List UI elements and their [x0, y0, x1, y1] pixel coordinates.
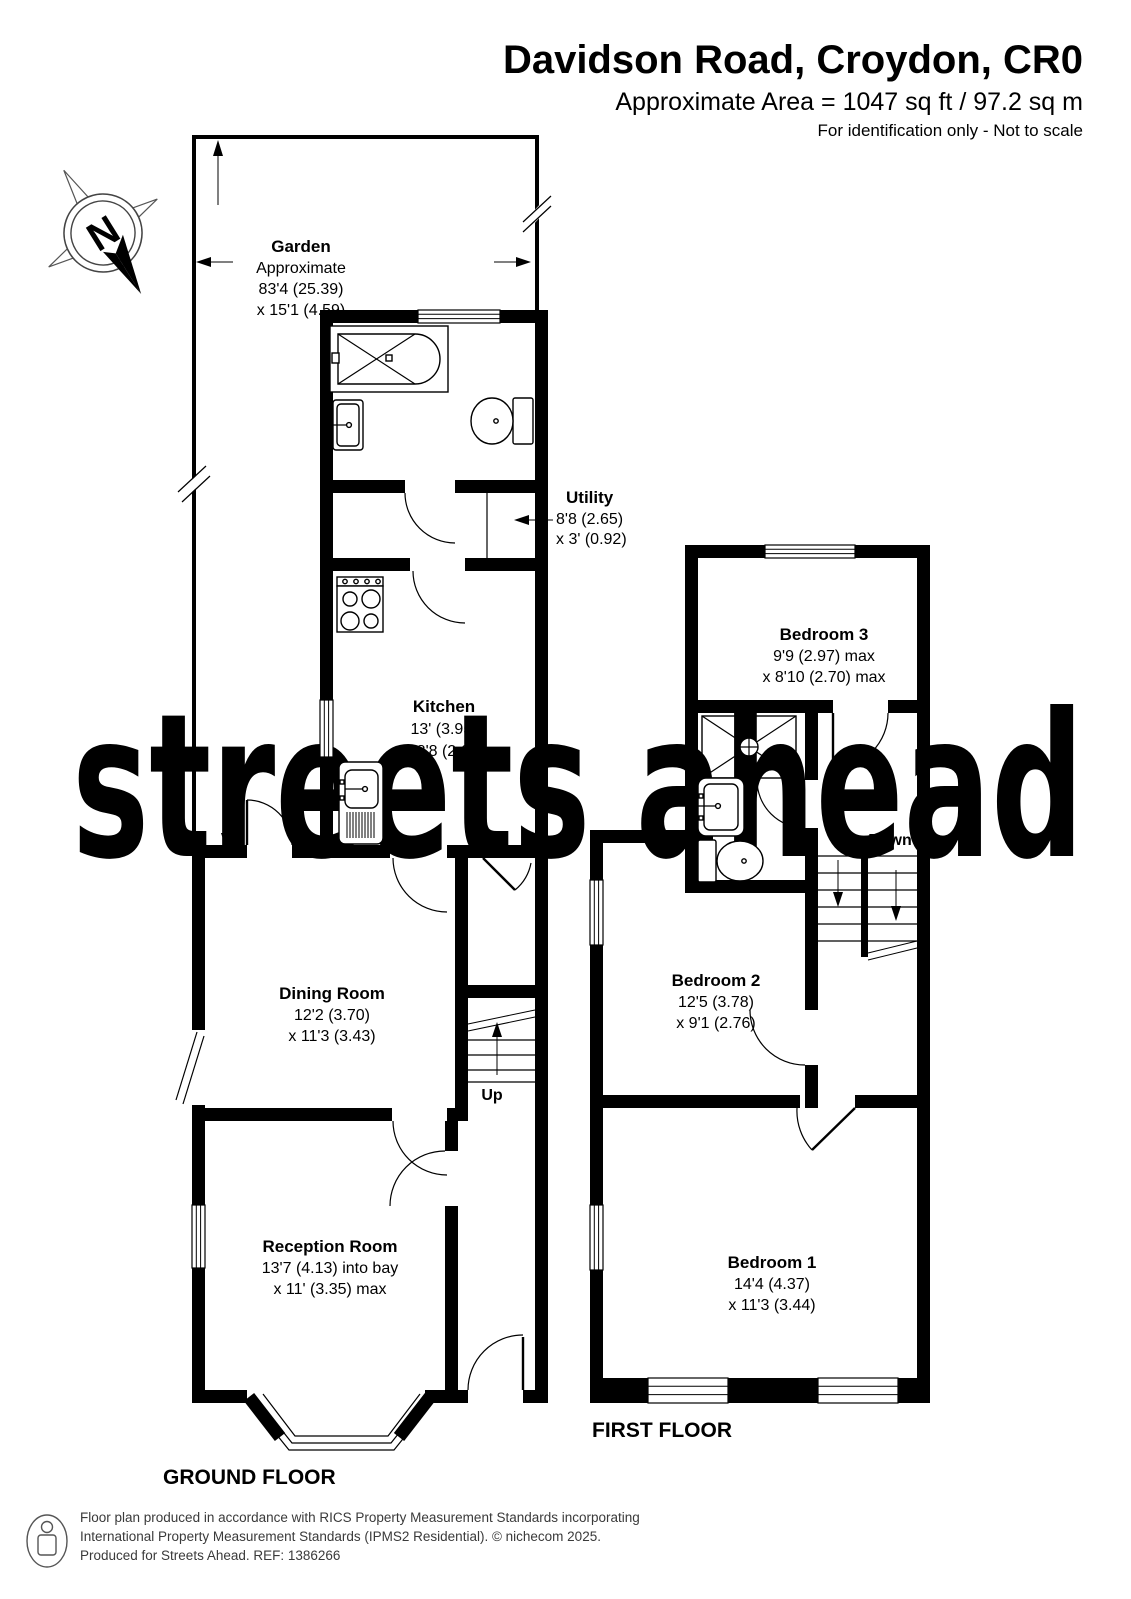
stairs-up: Up — [468, 1010, 535, 1104]
utility-label: Utility 8'8 (2.65) x 3' (0.92) — [514, 488, 627, 548]
kitchen-sink-icon — [339, 762, 383, 844]
area-line: Approximate Area = 1047 sq ft / 97.2 sq … — [615, 88, 1083, 116]
svg-text:Utility: Utility — [566, 488, 614, 507]
bedroom3-label: Bedroom 3 9'9 (2.97) max x 8'10 (2.70) m… — [762, 625, 885, 686]
footer-line-2: International Property Measurement Stand… — [80, 1529, 601, 1544]
svg-text:8'8 (2.65): 8'8 (2.65) — [556, 511, 623, 528]
header: Davidson Road, Croydon, CR0 Approximate … — [503, 38, 1083, 140]
shower-room-sink-icon — [698, 778, 744, 836]
watermark-text: streets ahead — [72, 671, 1084, 904]
svg-text:Garden: Garden — [271, 237, 331, 256]
footer-line-3: Produced for Streets Ahead. REF: 1386266 — [80, 1548, 340, 1563]
svg-text:83'4 (25.39): 83'4 (25.39) — [259, 281, 344, 298]
stairs-down-label: Down — [868, 832, 912, 849]
svg-text:x 15'1 (4.59): x 15'1 (4.59) — [257, 302, 345, 319]
footer-line-1: Floor plan produced in accordance with R… — [80, 1510, 640, 1525]
svg-text:14'4 (4.37): 14'4 (4.37) — [734, 1276, 810, 1293]
svg-text:x 9'1 (2.76): x 9'1 (2.76) — [676, 1015, 756, 1032]
compass-icon: N — [10, 136, 196, 328]
svg-text:Bedroom 1: Bedroom 1 — [728, 1253, 817, 1272]
shower-room-toilet-icon — [698, 840, 763, 882]
svg-text:Kitchen: Kitchen — [413, 697, 475, 716]
stove-icon — [337, 577, 383, 632]
page-title: Davidson Road, Croydon, CR0 — [503, 38, 1083, 82]
svg-text:Bedroom 2: Bedroom 2 — [672, 971, 761, 990]
svg-text:x 11' (3.35) max: x 11' (3.35) max — [273, 1281, 386, 1298]
bathtub-icon — [330, 326, 448, 392]
svg-text:Approximate: Approximate — [256, 260, 346, 277]
kitchen-label: Kitchen 13' (3.95) x 8'8 (2.65) — [404, 697, 484, 760]
svg-text:x 8'10 (2.70) max: x 8'10 (2.70) max — [762, 669, 885, 686]
svg-text:12'2 (3.70): 12'2 (3.70) — [294, 1007, 370, 1024]
svg-text:x 3' (0.92): x 3' (0.92) — [556, 531, 627, 548]
svg-text:13' (3.95): 13' (3.95) — [410, 721, 477, 738]
ground-floor-title: GROUND FLOOR — [163, 1466, 336, 1489]
person-icon — [27, 1515, 67, 1567]
reception-room-label: Reception Room 13'7 (4.13) into bay x 11… — [262, 1237, 398, 1298]
svg-text:9'9 (2.97) max: 9'9 (2.97) max — [773, 648, 875, 665]
svg-text:x 11'3 (3.44): x 11'3 (3.44) — [728, 1297, 815, 1314]
bedroom2-label: Bedroom 2 12'5 (3.78) x 9'1 (2.76) — [672, 971, 761, 1032]
dining-room-label: Dining Room 12'2 (3.70) x 11'3 (3.43) — [279, 984, 385, 1045]
toilet-icon — [471, 398, 533, 444]
footer: Floor plan produced in accordance with R… — [27, 1510, 640, 1567]
svg-text:Bedroom 3: Bedroom 3 — [780, 625, 869, 644]
svg-text:13'7 (4.13) into bay: 13'7 (4.13) into bay — [262, 1260, 398, 1277]
bathroom-sink-icon — [333, 400, 363, 450]
scale-note: For identification only - Not to scale — [817, 121, 1083, 140]
stairs-up-label: Up — [481, 1087, 503, 1104]
svg-text:Reception Room: Reception Room — [262, 1237, 397, 1256]
svg-text:x 11'3 (3.43): x 11'3 (3.43) — [288, 1028, 375, 1045]
svg-text:Dining Room: Dining Room — [279, 984, 385, 1003]
svg-text:x 8'8 (2.65): x 8'8 (2.65) — [404, 743, 484, 760]
svg-text:12'5 (3.78): 12'5 (3.78) — [678, 994, 754, 1011]
first-floor-title: FIRST FLOOR — [592, 1419, 732, 1442]
garden-label: Garden Approximate 83'4 (25.39) x 15'1 (… — [256, 237, 346, 319]
bedroom1-label: Bedroom 1 14'4 (4.37) x 11'3 (3.44) — [728, 1253, 817, 1314]
floorplan-page: streets ahead Davidson Road, Croydon, CR… — [0, 0, 1131, 1599]
